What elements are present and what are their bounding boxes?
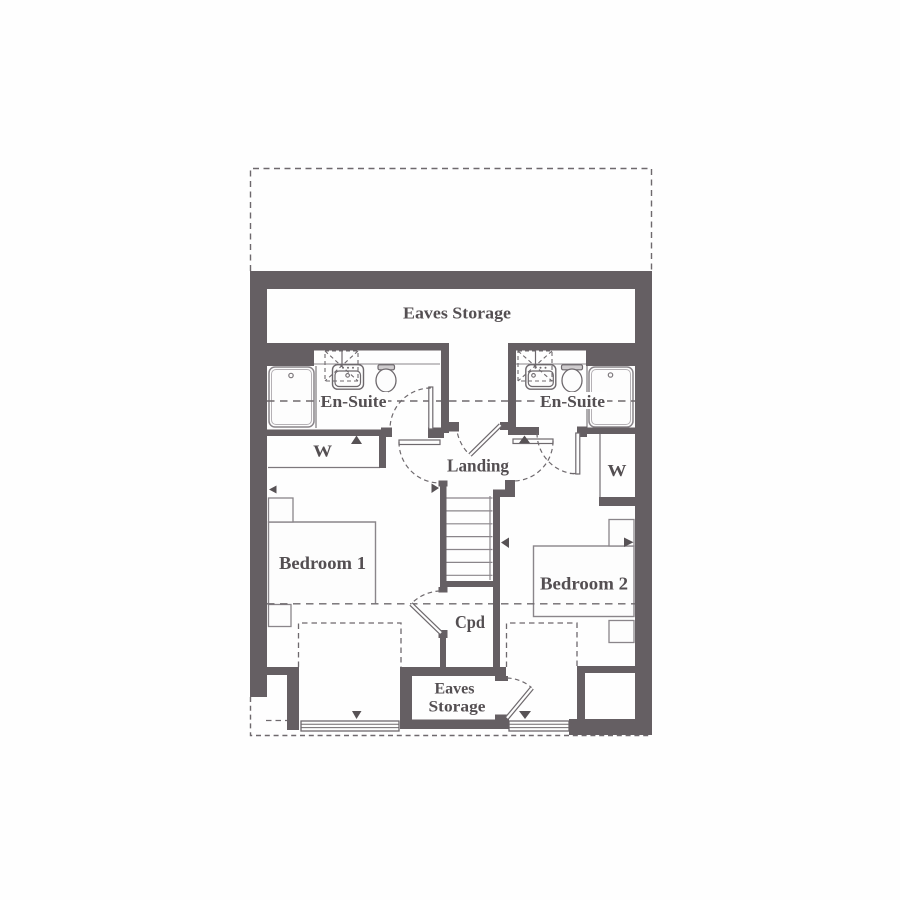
svg-text:W: W [608,461,627,480]
svg-text:Cpd: Cpd [455,612,485,632]
svg-text:Landing: Landing [447,456,509,476]
svg-text:En-Suite: En-Suite [540,392,605,411]
svg-text:Eaves: Eaves [435,681,475,698]
svg-text:Bedroom 1: Bedroom 1 [279,553,366,573]
svg-text:En-Suite: En-Suite [321,392,387,411]
svg-text:Bedroom 2: Bedroom 2 [540,574,628,594]
svg-text:W: W [313,441,332,460]
svg-text:Eaves Storage: Eaves Storage [403,304,511,323]
svg-text:Storage: Storage [429,699,486,716]
